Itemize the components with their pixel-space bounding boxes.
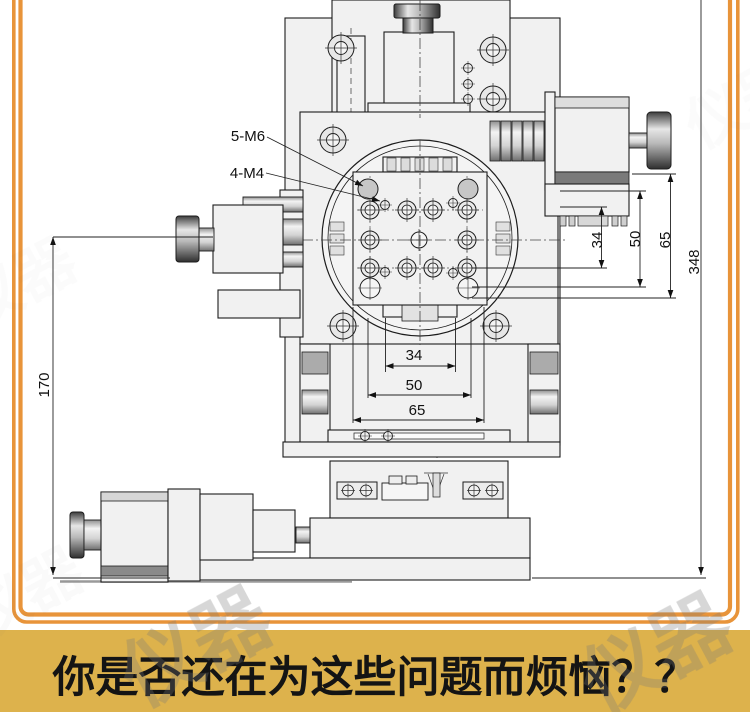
technical-drawing: 5-M6 4-M4 34 50 65 34 50 65 348 [0,0,750,712]
dim-bottom-50: 50 [406,377,423,394]
left-micrometer [176,190,303,337]
stage-carriage [310,518,530,558]
right-knob-icon [647,112,671,169]
dim-bottom-34: 34 [406,347,423,364]
dim-right-50: 50 [627,231,644,248]
z-knob-icon [394,4,440,18]
right-connector [545,184,629,216]
label-5-m6: 5-M6 [231,128,265,145]
base-plate [167,558,530,580]
dim-left-170-value: 170 [36,372,53,397]
z-motor-body [384,32,454,104]
bottom-knob-icon [70,512,84,558]
left-knob-icon [176,216,199,262]
z-knob-neck [403,17,433,33]
dim-right-65: 65 [657,232,674,249]
watermark-text: 仪器 [566,578,747,712]
left-micrometer-body [213,205,283,273]
dim-bottom-65: 65 [409,402,426,419]
machine-drawing [60,0,671,582]
label-4-m4: 4-M4 [230,165,264,182]
dim-right-348: 348 [686,249,703,274]
watermark-text: 仪器 [106,572,287,712]
dim-right-34: 34 [589,232,606,249]
